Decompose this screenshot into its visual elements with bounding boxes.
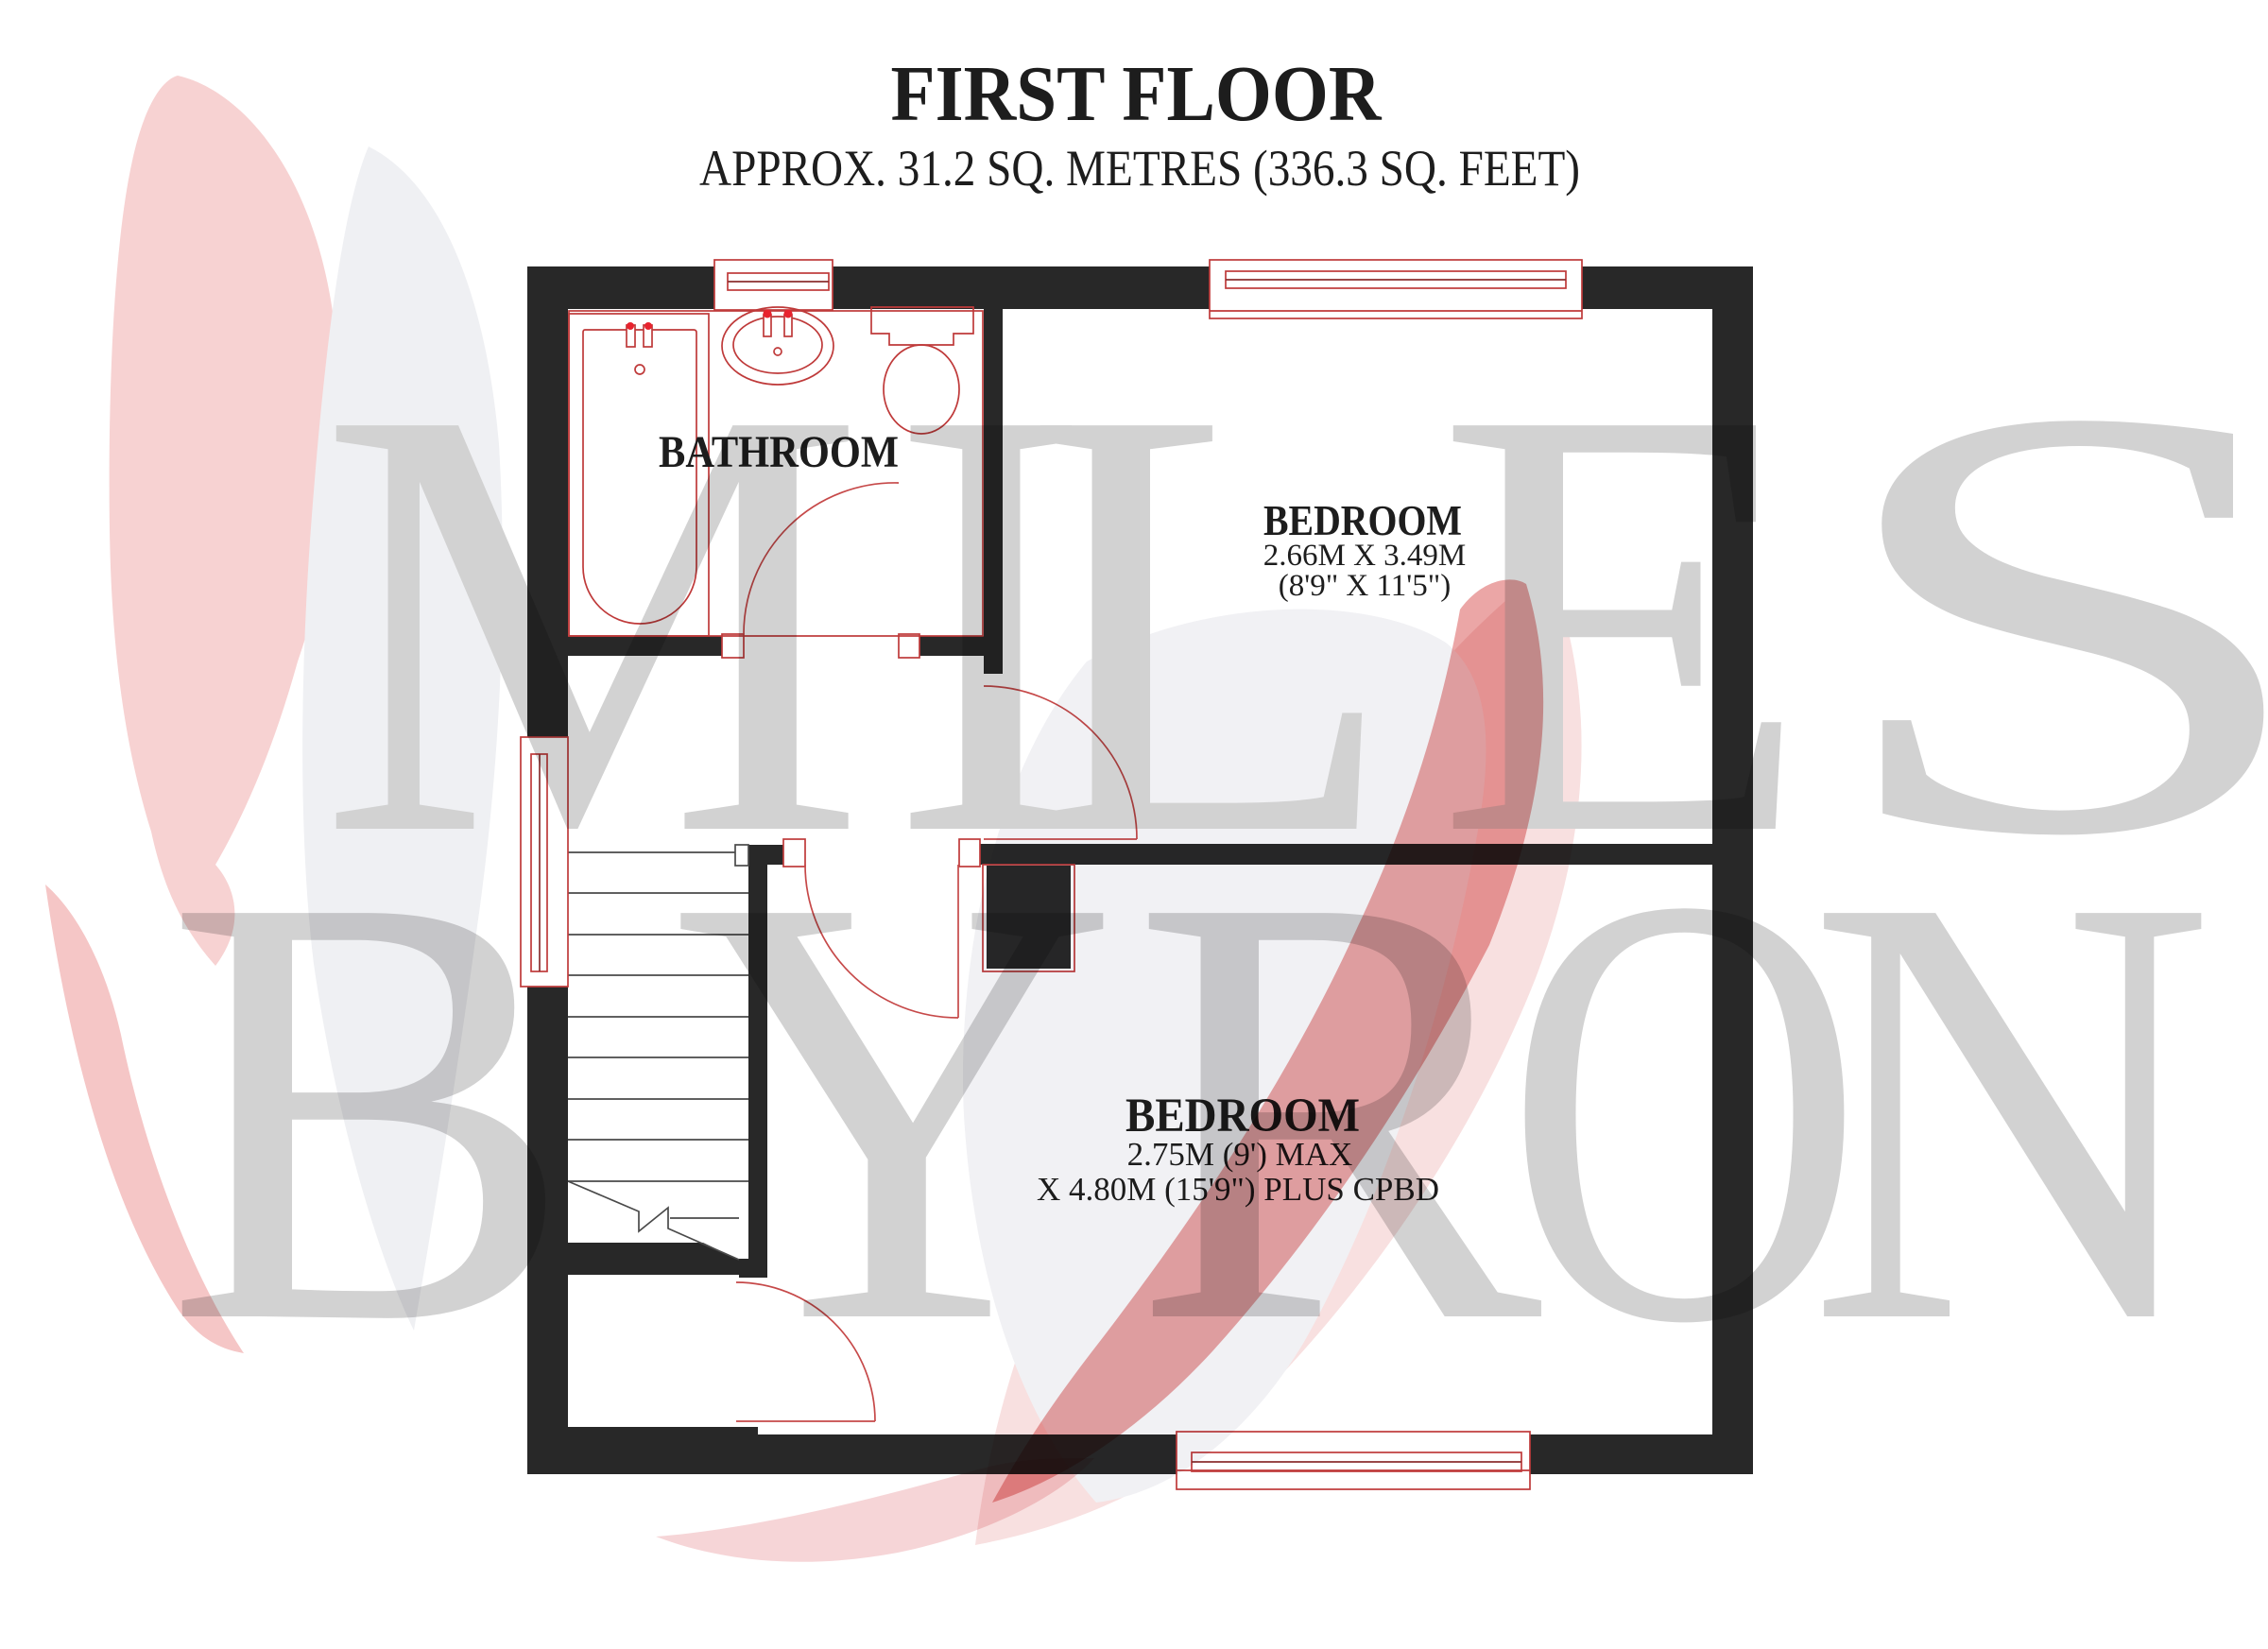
svg-text:N: N bbox=[1808, 768, 2214, 1451]
svg-text:Y: Y bbox=[674, 768, 1119, 1451]
svg-text:B: B bbox=[164, 768, 576, 1451]
svg-text:R: R bbox=[1131, 768, 1545, 1451]
